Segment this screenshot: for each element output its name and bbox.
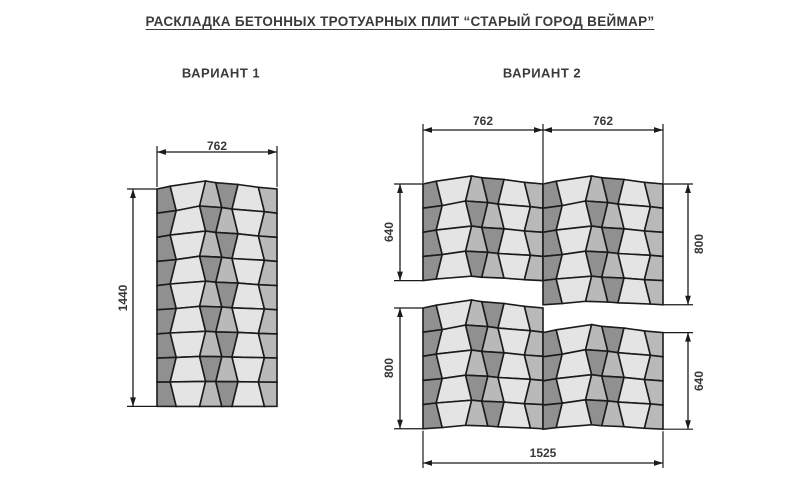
variant2-topband-right-dimension: 800 [692,234,706,254]
layout-drawing [0,0,800,496]
variant2-bottomband-left-dimension: 800 [382,358,396,378]
dimension-arrow [397,308,403,317]
dimension-arrow [685,420,691,429]
variant2-width-right-dimension: 762 [593,114,613,128]
variant2-bottomband-right-dimension: 640 [692,371,706,391]
variant2-total-width-dimension: 1525 [530,446,557,460]
dimension-arrow [654,127,663,133]
dimension-arrow [685,296,691,305]
dimension-arrow [685,333,691,342]
drawing-canvas: РАСКЛАДКА БЕТОННЫХ ТРОТУАРНЫХ ПЛИТ “СТАР… [0,0,800,496]
dimension-arrow [130,397,136,406]
dimension-arrow [397,272,403,281]
dimension-arrow [397,184,403,193]
dimension-arrow [157,149,166,155]
dimension-arrow [654,460,663,466]
dimension-arrow [397,420,403,429]
dimension-arrow [423,127,432,133]
variant2-topband-left-dimension: 640 [382,222,396,242]
dimension-arrow [423,460,432,466]
variant1-width-dimension: 762 [207,139,227,153]
dimension-arrow [130,189,136,198]
variant1-height-dimension: 1440 [116,285,130,312]
dimension-arrow [685,184,691,193]
dimension-arrow [534,127,543,133]
dimension-arrow [268,149,277,155]
dimension-arrow [543,127,552,133]
variant2-width-left-dimension: 762 [473,114,493,128]
